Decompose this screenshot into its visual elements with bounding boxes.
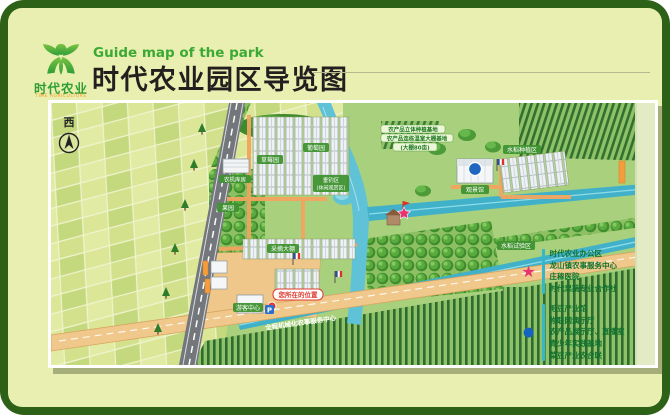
legend-divider <box>542 249 545 294</box>
legend-dot-icon: ● <box>520 326 537 339</box>
legend-item: 菜豆产业农合联 <box>550 351 625 361</box>
label-grape: 葡萄园 <box>307 144 325 152</box>
svg-text:您所在的位置: 您所在的位置 <box>279 290 319 299</box>
svg-text:农产品立体种植基地: 农产品立体种植基地 <box>387 125 438 133</box>
compass-west-label: 西 <box>64 116 75 129</box>
svg-text:农产品连栋温室大棚基地: 农产品连栋温室大棚基地 <box>386 134 448 142</box>
label-fishing-1: 垂钓区 <box>323 176 340 184</box>
brand-logo: 时代农业 TIME AGRICULTURE <box>30 42 92 100</box>
legend-item: 时代农业办公区 <box>550 249 618 259</box>
legend-group-dot: ● 毛豆产业馆 物联网演示厅 农产品展示厅、直播室 青少年实践基地 菜豆产业农合… <box>520 304 650 361</box>
brand-subtext: TIME AGRICULTURE <box>30 95 92 100</box>
label-fishing-2: (休闲观赏区) <box>317 185 346 192</box>
legend-item: 时代果蔬专业合作社 <box>550 284 618 294</box>
label-picking: 采摘大棚 <box>271 245 295 253</box>
label-orchard: 果园 <box>222 205 234 212</box>
legend-item: 青少年实践基地 <box>550 339 625 349</box>
legend: ★ 时代农业办公区 龙山镇农事服务中心 庄稼医院 时代果蔬专业合作社 ● 毛豆产… <box>520 249 650 371</box>
page-title: 时代农业园区导览图 <box>92 58 349 97</box>
label-strawberry: 草莓园 <box>261 156 279 164</box>
outer-frame: 时代农业 TIME AGRICULTURE Guide map of the p… <box>0 0 670 415</box>
legend-group-star: ★ 时代农业办公区 龙山镇农事服务中心 庄稼医院 时代果蔬专业合作社 <box>520 249 650 294</box>
svg-text:P: P <box>267 307 272 315</box>
legend-divider <box>542 304 545 361</box>
legend-item: 农产品展示厅、直播室 <box>550 327 625 337</box>
label-viewing-hall: 观景馆 <box>466 186 484 194</box>
svg-text:(大棚80亩): (大棚80亩) <box>400 143 430 151</box>
label-rice-planting: 水稻种植区 <box>507 146 537 154</box>
legend-item: 龙山镇农事服务中心 <box>550 261 618 271</box>
legend-item: 毛豆产业馆 <box>550 304 625 314</box>
label-machinery: 农机库房 <box>224 175 247 183</box>
brand-logo-icon <box>39 42 83 78</box>
legend-star-icon: ★ <box>520 264 537 280</box>
map-dot-marker <box>469 163 482 176</box>
parking-sign: P <box>265 305 274 315</box>
header-rule <box>312 72 650 73</box>
sign-board <box>619 161 625 183</box>
machinery-building <box>223 159 249 173</box>
legend-item: 物联网演示厅 <box>550 316 625 326</box>
legend-item: 庄稼医院 <box>550 272 618 282</box>
label-visitor-center: 游客中心 <box>236 304 260 312</box>
